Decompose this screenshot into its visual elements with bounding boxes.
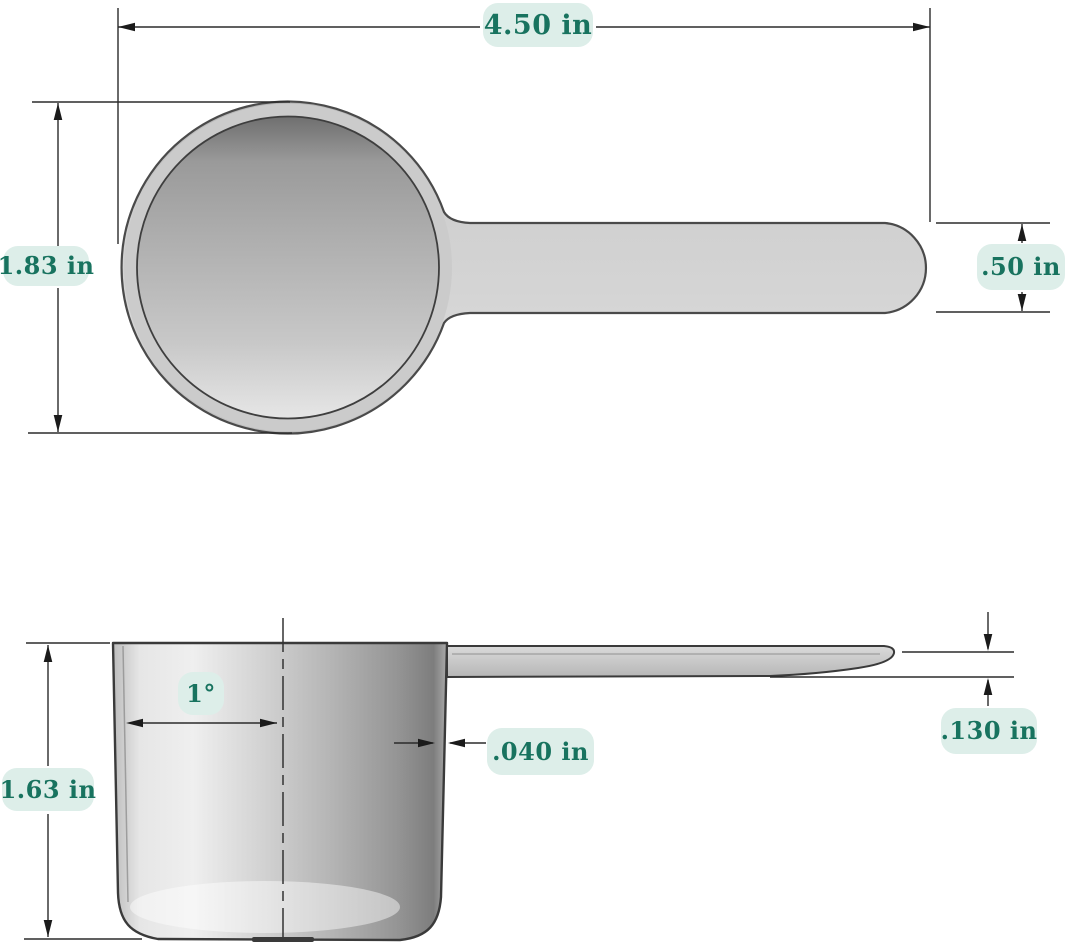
cup-bottom-highlight bbox=[130, 881, 400, 933]
arrow-up-icon bbox=[44, 645, 53, 662]
arrow-down-icon bbox=[54, 415, 63, 432]
arrow-up-icon bbox=[54, 103, 63, 120]
arrow-up-icon bbox=[984, 678, 993, 695]
drawing-svg bbox=[0, 0, 1080, 946]
dim-label-bowl-diameter: 1.83 in bbox=[3, 246, 89, 286]
arrow-left-icon bbox=[118, 23, 135, 32]
dim-label-handle-thickness: .130 in bbox=[941, 708, 1037, 754]
dim-label-draft-angle: 1° bbox=[178, 672, 224, 715]
handle-section bbox=[447, 646, 894, 677]
technical-drawing-canvas: 4.50 in 1.83 in .50 in 1.63 in 1° .040 i… bbox=[0, 0, 1080, 946]
cup-bottom-tab bbox=[252, 937, 314, 942]
arrow-down-icon bbox=[44, 920, 53, 937]
arrow-up-icon bbox=[1018, 224, 1027, 241]
dim-label-overall-length: 4.50 in bbox=[483, 3, 593, 47]
arrow-left-icon bbox=[448, 739, 465, 748]
dim-label-handle-width: .50 in bbox=[977, 244, 1065, 290]
dim-label-wall-thickness: .040 in bbox=[487, 728, 594, 775]
arrow-down-icon bbox=[984, 634, 993, 651]
top-view-drawing bbox=[122, 101, 926, 433]
side-view-drawing bbox=[113, 618, 894, 942]
dim-label-cup-height: 1.63 in bbox=[2, 768, 94, 811]
arrow-right-icon bbox=[913, 23, 930, 32]
bowl-interior bbox=[137, 117, 439, 419]
arrow-down-icon bbox=[1018, 294, 1027, 311]
